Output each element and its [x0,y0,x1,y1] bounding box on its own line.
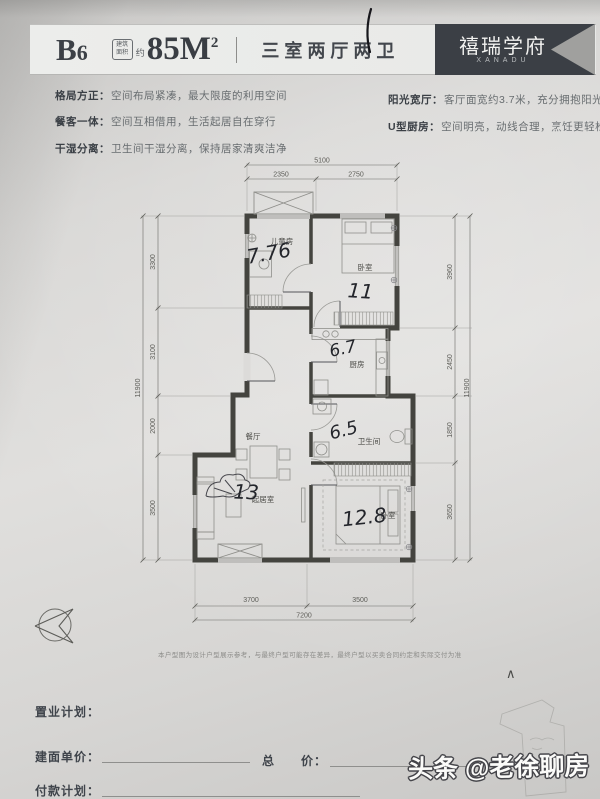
header-divider [236,37,237,63]
header-bar: B6 建筑 面积 约 85M2 三室两厅两卫 禧瑞学府 XANADU [30,24,596,75]
ac-balcony-box [254,192,313,214]
approx-label: 约 [136,46,145,59]
feature-row: 阳光宽厅：客厅面宽约3.7米，充分拥抱阳光 [388,92,600,107]
dimension-lines [143,165,470,620]
unit-price-line [102,762,250,763]
room-label-kitchen: 厨房 [350,359,365,369]
area-seal: 建筑 面积 [112,39,133,60]
floorplan-drawing: 5100 2350 2750 11900 3300 3100 2000 3500… [130,156,485,666]
purchase-plan-label: 置业计划： [35,703,100,720]
handwritten-area-kitchen: 6.7 [328,336,359,361]
entry-door-gap [244,353,251,381]
dimension-extension-lines [141,163,472,622]
dim-right-seg: 1850 [447,422,454,438]
area-value: 85M2 [147,33,219,66]
dim-top-seg: 2350 [273,172,289,179]
dim-right-total: 11900 [464,378,471,397]
dimension-ticks [141,163,473,623]
feature-row: 餐客一体：空间互相借用，生活起居自在穿行 [55,114,276,129]
dim-bottom-total: 7200 [296,613,312,620]
brochure-photo-page: B6 建筑 面积 约 85M2 三室两厅两卫 禧瑞学府 XANADU 格局方正：… [0,0,600,799]
payment-plan-line [102,796,360,797]
brand-name: 禧瑞学府 [447,30,559,59]
bay-window-box [218,544,262,558]
dim-right-seg: 3960 [447,264,454,280]
dim-top-seg: 2750 [348,172,364,179]
dim-left-seg: 3500 [150,500,157,516]
pen-stroke-mark [352,6,388,58]
dim-left-seg: 2000 [150,418,157,434]
feature-row: U型厨房：空间明亮，动线合理，烹饪更轻松自在 [388,119,600,134]
dim-bottom-seg: 3500 [352,597,368,604]
dim-left-seg: 3100 [150,344,157,360]
north-compass-icon [25,595,85,655]
room-label-bedroom1: 卧室 [358,262,373,272]
disclaimer-text: 本户型图为设计户型展示参考，与最终户型可能存在差异，最终户型以买卖合同约定和实际… [158,649,568,659]
watermark-text: 头条 @老徐聊房 [408,746,590,785]
dim-bottom-seg: 3700 [243,597,259,604]
unit-code: B6 [56,34,88,65]
total-price-label: 总 价： [262,752,327,769]
feature-row: 格局方正：空间布局紧凑，最大限度的利用空间 [55,88,287,103]
floorplan-furniture [197,219,412,550]
handwritten-area-bathroom: 6.5 [327,417,360,444]
payment-plan-label: 付款计划： [35,782,100,799]
handwritten-area-bedroom2: 12.8 [341,503,388,532]
handwritten-area-living: 13 [233,480,259,505]
dim-right-seg: 2450 [447,354,454,370]
dim-left-total: 11900 [135,378,142,397]
room-label-dining: 餐厅 [246,432,261,441]
unit-price-label: 建面单价： [35,748,100,765]
feature-row: 干湿分离：卫生间干湿分离，保持居家清爽洁净 [55,141,287,156]
dim-right-seg: 3650 [447,504,454,520]
room-label-bathroom: 卫生间 [358,436,381,446]
handwritten-area-bedroom1: 11 [347,278,374,304]
dim-left-seg: 3300 [150,254,157,270]
brand-name-en: XANADU [447,57,559,64]
dim-top-total: 5100 [314,158,330,165]
caret-mark: ∧ [506,666,516,682]
brand-logo: 禧瑞学府 XANADU [435,24,595,75]
